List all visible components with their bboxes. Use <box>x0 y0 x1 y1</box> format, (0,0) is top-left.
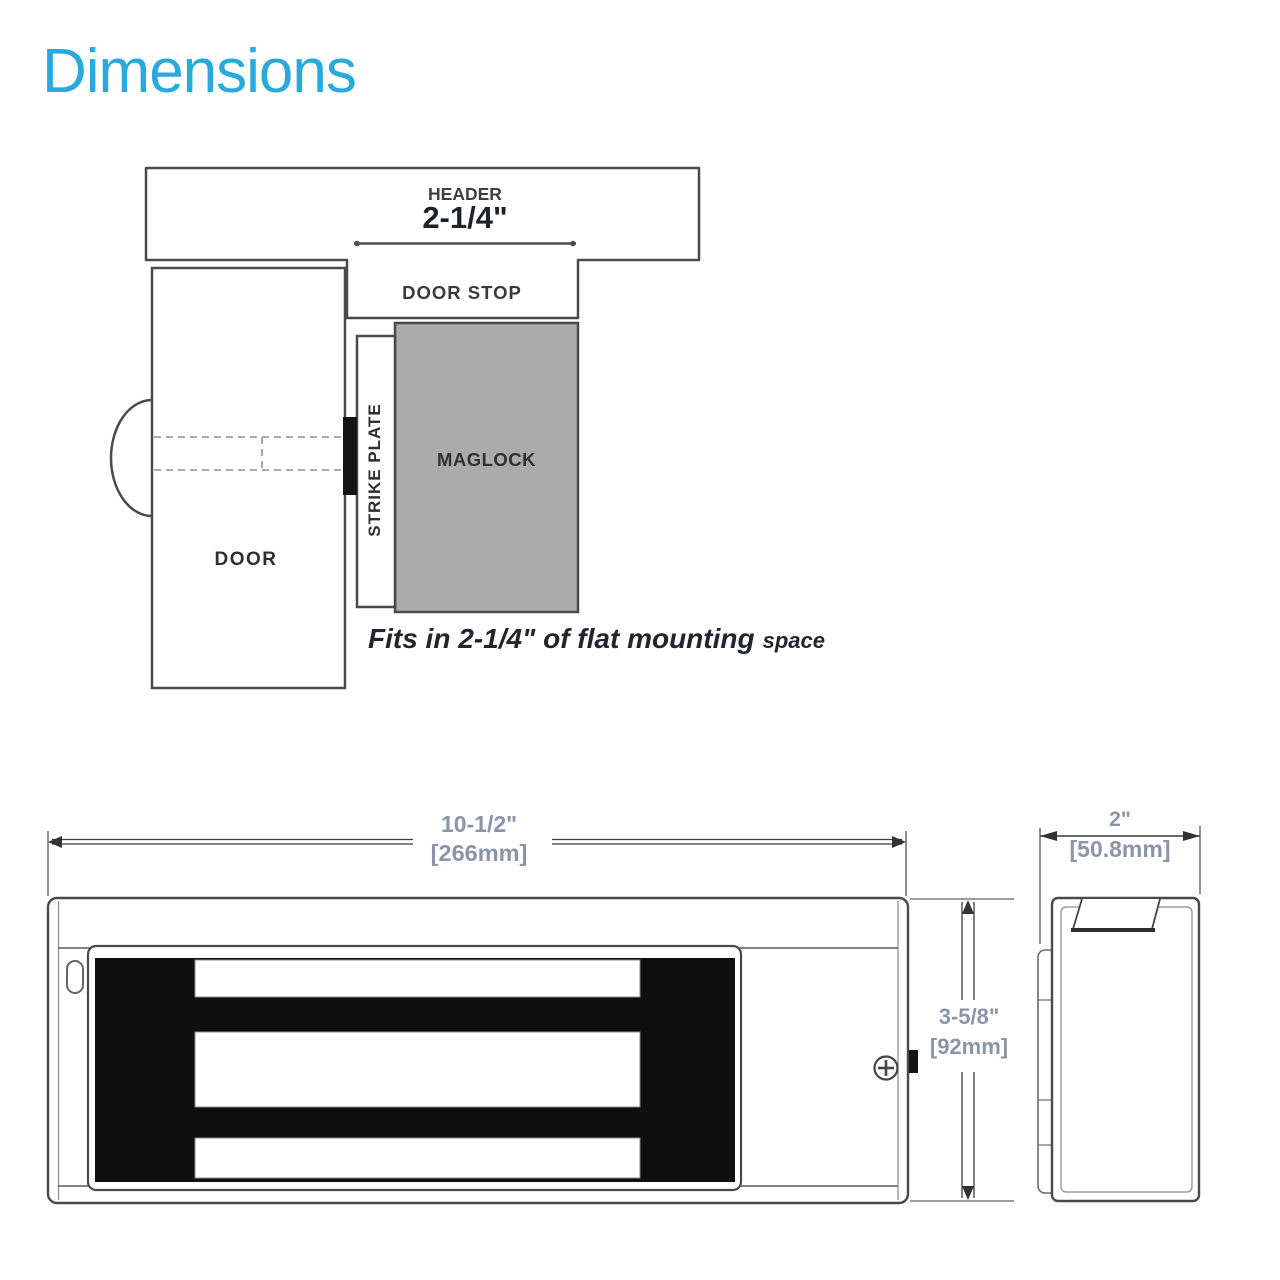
mounting-slot <box>67 961 83 993</box>
arrow-right <box>892 836 906 848</box>
front-width-inches: 10-1/2" <box>404 811 554 838</box>
wire-notch-fill <box>1073 899 1160 929</box>
side-view <box>1038 826 1200 1201</box>
dimensions-page: Dimensions HEADER 2-1/4" DOOR STOP STRIK… <box>0 0 1280 1280</box>
arrow-down <box>962 1186 974 1200</box>
front-view <box>48 831 1014 1203</box>
side-width-mm: [50.8mm] <box>1045 836 1195 863</box>
mounting-caption-suffix: space <box>763 628 825 654</box>
mounting-caption: Fits in 2-1/4" of flat mounting space <box>368 623 825 655</box>
arrow-left <box>48 836 62 848</box>
maglock-housing-side <box>1052 898 1199 1201</box>
maglock-label: MAGLOCK <box>397 449 576 471</box>
door-stop-label: DOOR STOP <box>362 282 562 304</box>
side-width-inches: 2" <box>1045 808 1195 832</box>
door <box>152 268 345 688</box>
strike-plate-label: STRIKE PLATE <box>365 375 387 565</box>
front-height-inches: 3-5/8" <box>894 1004 1044 1030</box>
contact-block <box>343 417 357 495</box>
door-knob <box>111 400 152 516</box>
dimension-end-dot-right <box>570 241 576 247</box>
mounting-cross-section <box>111 168 699 688</box>
front-width-mm: [266mm] <box>404 840 554 867</box>
magnet-pole-slots <box>195 960 640 1178</box>
arrow-up <box>962 900 974 914</box>
mounting-caption-main: Fits in 2-1/4" of flat mounting <box>368 623 755 655</box>
front-height-mm: [92mm] <box>894 1034 1044 1060</box>
dimension-end-dot-left <box>354 241 360 247</box>
header-dimension-value: 2-1/4" <box>358 200 572 236</box>
page-title: Dimensions <box>42 36 356 107</box>
door-label: DOOR <box>166 549 326 571</box>
